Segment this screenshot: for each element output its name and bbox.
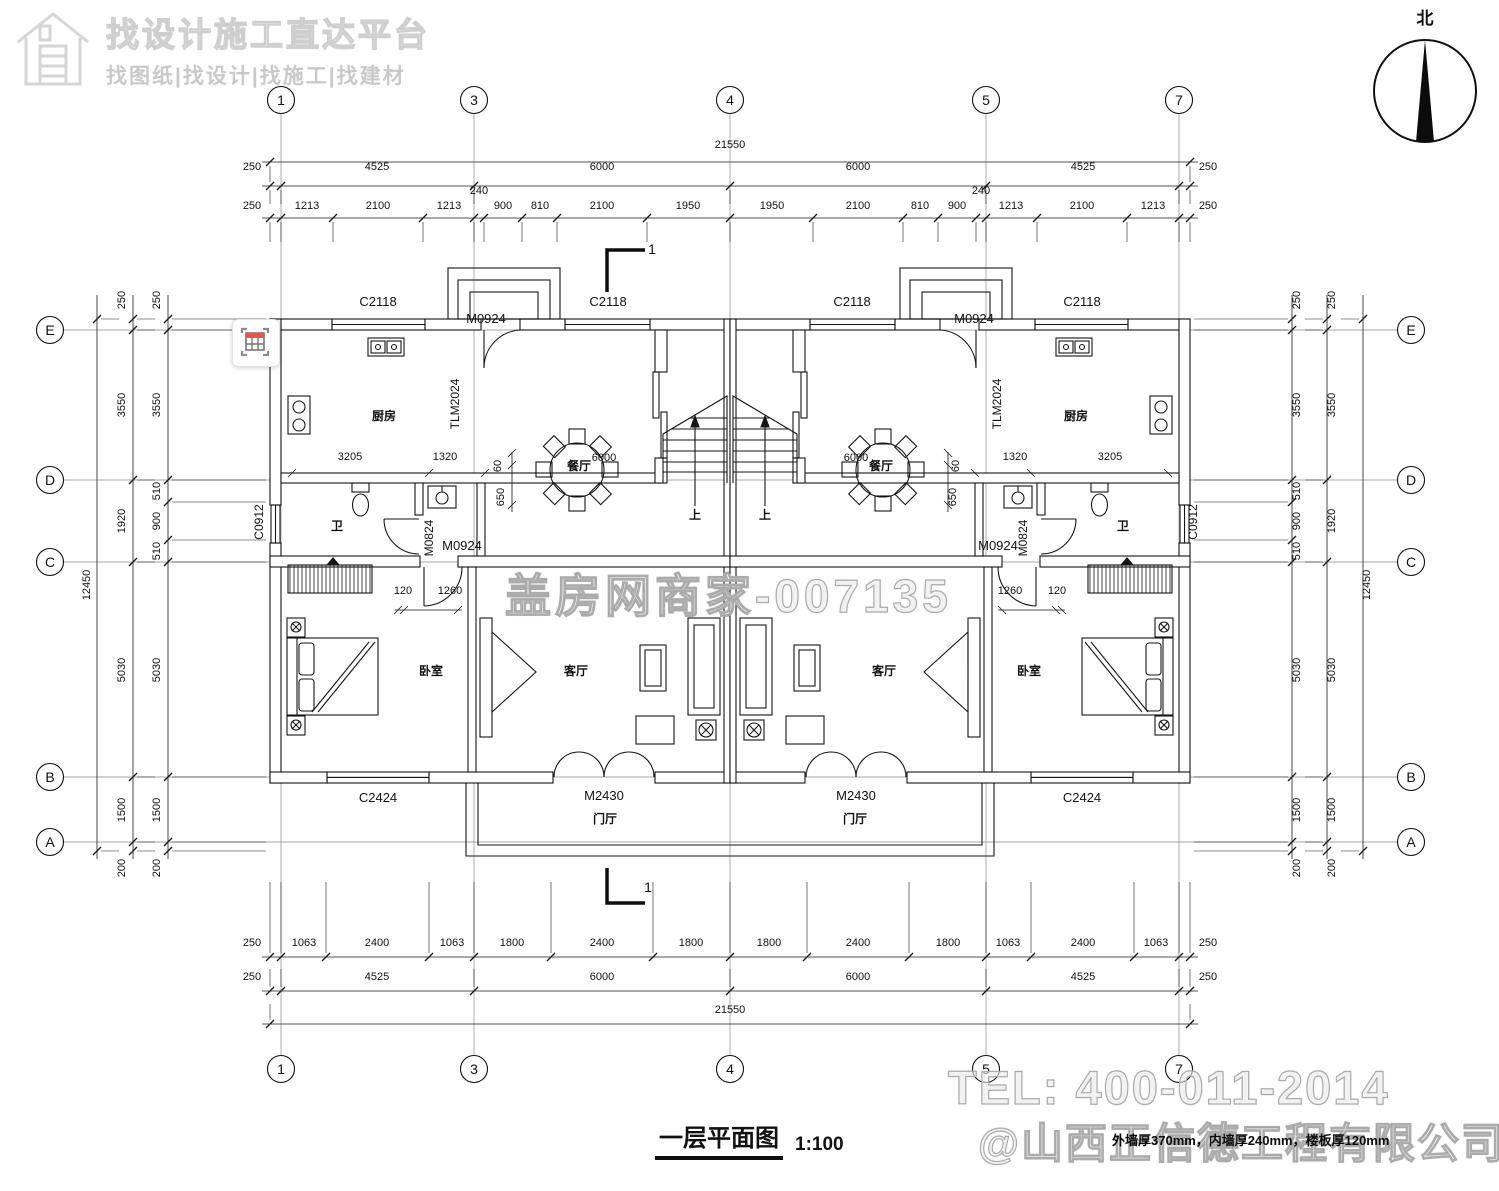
dim-label: 12450 [1361,570,1373,601]
axis-bubble-A: A [1406,834,1416,850]
room-label: 上 [759,507,771,522]
dim-label: 5030 [116,658,128,682]
dim-label: 2400 [846,937,870,949]
dim-label: 120 [394,585,412,597]
dim-label: 250 [116,291,128,309]
dim-label: C2118 [589,294,626,309]
dim-label: TLM2024 [448,378,462,429]
axis-bubble-7: 7 [1175,1061,1183,1077]
dwelling-unit [270,268,730,856]
room-label: 门厅 [843,811,867,826]
room-label: 厨房 [1064,408,1088,423]
dim-label: 3205 [338,451,362,463]
axis-bubble-3: 3 [470,1061,478,1077]
dim-label: C2118 [1063,294,1100,309]
dim-label: C2424 [1063,790,1101,805]
dim-label: 2100 [846,200,870,212]
dim-label: 2400 [1071,937,1095,949]
dim-label: 1800 [679,937,703,949]
axis-bubble-4: 4 [726,92,734,108]
axis-bubble-3: 3 [470,92,478,108]
dim-label: 5030 [151,658,163,682]
dim-label: 4525 [365,971,389,983]
table-capture-button[interactable] [232,319,280,367]
axis-bubble-4: 4 [726,1061,734,1077]
dim-label: 1500 [1326,798,1338,822]
tv-icon [480,618,536,737]
dim-label: 1213 [999,200,1023,212]
dim-label: 1320 [1003,451,1027,463]
house-logo-icon [14,8,92,90]
dim-label: M0924 [466,311,506,326]
dim-label: 650 [495,488,507,506]
north-compass: 北 [1366,4,1484,152]
dim-label: 250 [243,161,261,173]
dim-label: 1500 [151,798,163,822]
dim-label: 1920 [116,509,128,533]
dim-label: C2118 [833,294,870,309]
dim-label: 2400 [590,937,614,949]
room-label: 门厅 [593,811,617,826]
dim-label: 1950 [676,200,700,212]
dim-label: 3550 [151,393,163,417]
dim-label: C0912 [1186,504,1200,540]
dim-label: 510 [1291,542,1303,560]
dim-label: 1 [648,241,656,257]
axis-bubble-A: A [45,834,55,850]
dim-label: 1800 [500,937,524,949]
dim-label: 250 [1199,200,1217,212]
dim-label: 250 [1199,161,1217,173]
dim-label: 21550 [715,139,746,151]
stairs-icon [663,396,727,506]
dim-label: 3550 [1326,393,1338,417]
dim-label: 6000 [844,452,868,464]
dim-label: 1063 [292,937,316,949]
dim-label: 3550 [1291,393,1303,417]
brand-subtitle: 找图纸|找设计|找施工|找建材 [106,60,430,90]
axis-bubble-B: B [45,769,54,785]
construction-note: 外墙厚370mm，内墙厚240mm，楼板厚120mm [1112,1130,1389,1149]
axis-bubble-B: B [1406,769,1415,785]
dim-label: 900 [1291,512,1303,530]
room-label: 餐厅 [567,458,591,473]
dim-label: M0924 [442,538,482,553]
site-logo: 找设计施工直达平台 找图纸|找设计|找施工|找建材 [14,8,430,90]
axis-bubble-C: C [1406,554,1416,570]
dim-label: 12450 [81,570,93,601]
drawing-scale: 1:100 [795,1134,844,1160]
dim-label: C2424 [359,790,397,805]
dim-label: 510 [1291,482,1303,500]
dim-label: 650 [947,488,959,506]
dim-label: 510 [151,542,163,560]
north-arrow-icon [1366,29,1484,147]
dim-label: 250 [151,291,163,309]
kitchen-sink-icon [368,338,404,356]
dim-label: 250 [243,200,261,212]
dim-label: 6000 [590,161,614,173]
dim-label: 900 [494,200,512,212]
axis-bubble-E: E [1406,322,1415,338]
dim-label: M2430 [836,788,876,803]
dim-label: 1063 [1144,937,1168,949]
room-label: 餐厅 [869,458,893,473]
dim-label: 6000 [846,161,870,173]
dim-label: 1950 [760,200,784,212]
dim-label: 4525 [365,161,389,173]
toilet-icon [352,483,369,516]
sliding-door-icon [653,372,659,418]
dim-label: 3550 [116,393,128,417]
dim-label: 1500 [1291,798,1303,822]
axis-bubble-5: 5 [982,92,990,108]
dim-label: 2400 [365,937,389,949]
dim-label: M0824 [1016,519,1030,556]
brand-title: 找设计施工直达平台 [106,8,430,56]
sofa-icon [636,618,720,744]
axis-bubble-1: 1 [277,92,285,108]
floorplan-page: 1345713457EDCBAEDCBA 2155025045256000600… [0,0,1499,1191]
dim-label: 2100 [1070,200,1094,212]
axis-bubble-7: 7 [1175,92,1183,108]
dim-label: 1063 [440,937,464,949]
section-mark [607,250,645,903]
dim-label: 510 [151,482,163,500]
dim-label: C2118 [359,294,396,309]
dim-label: TLM2024 [990,378,1004,429]
room-label: 卧室 [419,663,443,678]
dim-label: 6000 [846,971,870,983]
bath-sink-icon [428,486,456,508]
dim-label: 900 [948,200,966,212]
dim-label: 2100 [590,200,614,212]
dim-label: 200 [1326,859,1338,877]
axis-bubble-D: D [45,472,55,488]
dim-label: 240 [972,185,990,197]
dim-label: 3205 [1098,451,1122,463]
dim-label: 6000 [592,452,616,464]
dim-label: 5030 [1291,658,1303,682]
dim-label: 250 [1326,291,1338,309]
dim-label: 6000 [590,971,614,983]
dim-label: M0924 [954,311,994,326]
dim-label: 1800 [757,937,781,949]
dim-label: 250 [1199,971,1217,983]
room-label: 客厅 [563,663,588,678]
stove-icon [288,396,310,434]
drawing-title: 一层平面图 [655,1118,783,1160]
dim-label: 900 [151,512,163,530]
dim-label: 250 [1291,291,1303,309]
dim-label: 1320 [433,451,457,463]
dim-label: 5030 [1326,658,1338,682]
dim-label: 1260 [998,585,1022,597]
dim-label: 2100 [366,200,390,212]
axis-bubble-D: D [1406,472,1416,488]
dim-label: M0924 [978,538,1018,553]
dim-label: 1213 [1141,200,1165,212]
dim-label: 4525 [1071,971,1095,983]
dim-label: 250 [243,937,261,949]
dim-label: 1920 [1326,509,1338,533]
dim-label: 1 [644,879,652,895]
dim-label: 1800 [936,937,960,949]
dim-label: C0912 [252,504,266,540]
dim-label: 250 [1199,937,1217,949]
room-label: 卫 [1117,519,1129,533]
room-label: 上 [689,507,701,522]
bed-icon [287,638,378,715]
nightstand-icon [287,618,305,735]
dim-label: 200 [151,859,163,877]
room-label: 卧室 [1017,663,1041,678]
axis-bubble-5: 5 [982,1061,990,1077]
axis-bubble-1: 1 [277,1061,285,1077]
dim-label: 240 [470,185,488,197]
axis-bubble-C: C [45,554,55,570]
dim-label: 21550 [715,1004,746,1016]
north-label: 北 [1366,4,1484,29]
dim-label: 200 [1291,859,1303,877]
axis-bubble-E: E [45,322,54,338]
dim-label: M0824 [422,519,436,556]
dim-label: 60 [950,460,962,472]
dim-label: 810 [911,200,929,212]
room-label: 客厅 [871,663,896,678]
dim-label: 120 [1048,585,1066,597]
dim-label: 250 [243,971,261,983]
room-label: 厨房 [372,408,396,423]
dim-label: 810 [531,200,549,212]
dim-label: 4525 [1071,161,1095,173]
dim-label: 1213 [437,200,461,212]
dim-label: 1063 [996,937,1020,949]
dim-label: 1500 [116,798,128,822]
room-label: 卫 [331,519,343,533]
dim-label: 1260 [438,585,462,597]
dim-label: 60 [492,460,504,472]
drawing-title-block: 一层平面图 1:100 [655,1118,844,1160]
floor-plan-drawing: 1345713457EDCBAEDCBA 2155025045256000600… [0,0,1499,1191]
dim-label: 200 [116,859,128,877]
dim-label: M2430 [584,788,624,803]
dim-label: 1213 [295,200,319,212]
